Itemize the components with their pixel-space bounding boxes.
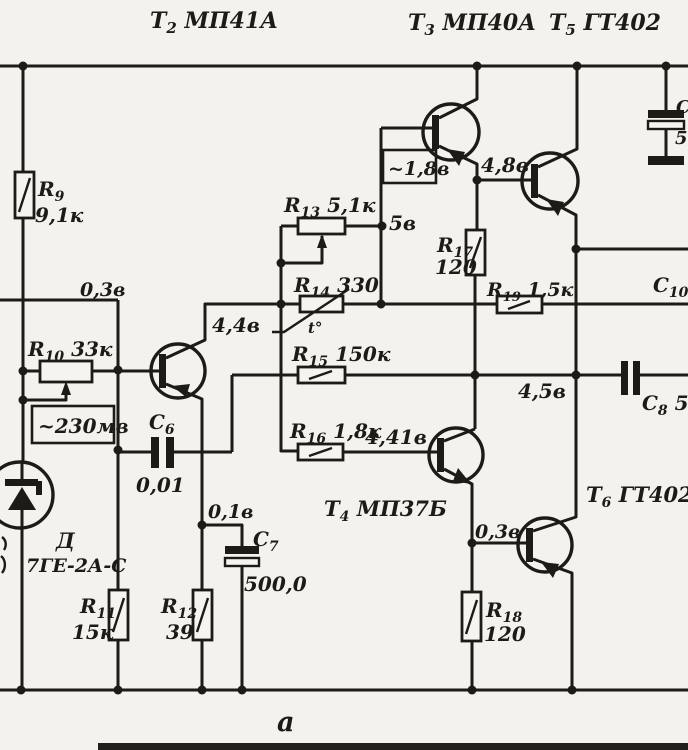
emitter-voltage: 0,1в xyxy=(208,501,254,523)
input-voltage: 0,3в xyxy=(80,279,126,301)
figure-caption: а xyxy=(277,707,295,738)
capacitor-c6-plate xyxy=(166,437,174,468)
ground-symbol xyxy=(648,156,684,165)
r17-value: 120 xyxy=(435,255,477,279)
v-4-5v: 4,5в xyxy=(518,379,566,403)
v-4-4v: 4,4в xyxy=(212,313,260,337)
scan-artifact xyxy=(98,743,688,750)
r15-label: R15 150к xyxy=(291,342,391,370)
r14-label: R14 330 xyxy=(293,273,379,301)
v-5v: 5в xyxy=(389,211,416,235)
t6-designation: Т6 ГТ402Б xyxy=(586,482,688,511)
diode-type: 7ГЕ-2А-С xyxy=(26,555,126,577)
r10-label: R10 33к xyxy=(27,337,113,365)
schematic-canvas: Т2 МП41АТ3 МП40АТ5 ГТ402R99,1к0,3вR10 33… xyxy=(0,0,688,750)
c9-cutoff-name: С xyxy=(676,97,688,118)
v-4-8v: 4,8в xyxy=(481,153,529,177)
schematic-scan-page: Т2 МП41АТ3 МП40АТ5 ГТ402R99,1к0,3вR10 33… xyxy=(0,0,688,750)
v-4-41v: 4,41в xyxy=(365,425,427,449)
thermo-mark: t° xyxy=(308,319,322,337)
capacitor-c8-plate xyxy=(621,361,628,395)
t6-base-voltage: 0,3в xyxy=(475,521,521,543)
r12-value: 39 xyxy=(166,620,194,644)
signal-level: ~230мв xyxy=(38,414,129,438)
r11-value: 15к xyxy=(72,620,114,644)
r9-value: 9,1к xyxy=(35,203,84,227)
diode-name: Д xyxy=(55,528,76,553)
boxed-1-8v: ~1,8в xyxy=(388,158,449,180)
c6-value: 0,01 xyxy=(136,473,185,497)
capacitor-c6-plate xyxy=(151,437,159,468)
capacitor-c7-plate xyxy=(225,558,259,566)
r13-label: R13 5,1к xyxy=(283,193,376,221)
r18-value: 120 xyxy=(484,622,526,646)
c7-value: 500,0 xyxy=(244,572,307,596)
capacitor-c8-plate xyxy=(633,361,640,395)
c9-cutoff-value: 5 xyxy=(675,128,688,149)
